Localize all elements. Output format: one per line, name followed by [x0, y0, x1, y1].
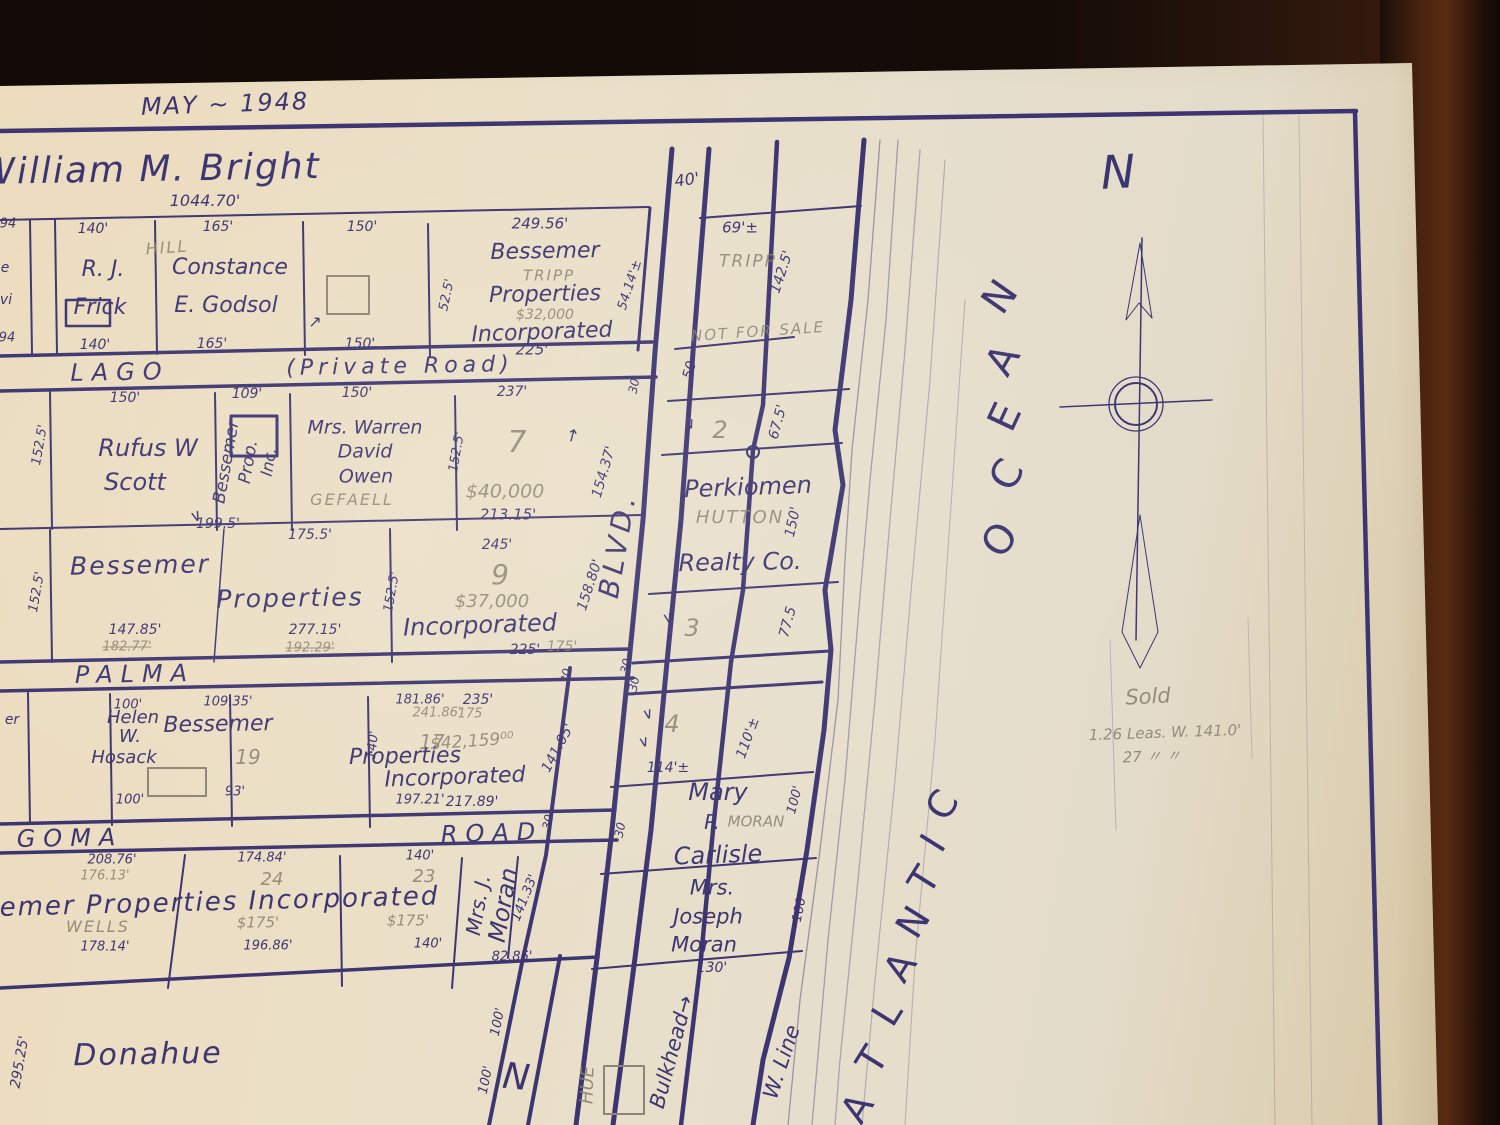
pencil-note-hue: HUE [578, 1066, 597, 1105]
paper-crease-1 [1263, 115, 1275, 1125]
row5-div-1 [168, 855, 185, 988]
pencil-lot-number-7: 7 [507, 428, 526, 458]
compass-shaft [1136, 238, 1142, 640]
measure-row3-b3: 225' [510, 643, 541, 657]
measure-scott-top: 150' [110, 391, 141, 405]
lot-row3-name-1: Bessemer [70, 551, 210, 578]
measure-bessemer-top: 249.56' [512, 217, 569, 232]
measure-bprop-top: 109' [232, 387, 263, 401]
road-label-palma: PALMA [75, 661, 196, 687]
pencil-lot-number-19: 19 [235, 747, 260, 767]
compass-north-label: N [1100, 148, 1137, 196]
pencil-lot-number-2: 2 [712, 418, 727, 442]
measure-owen-top: 150' [342, 386, 373, 400]
lot-frick-name-2: Frick [74, 297, 127, 319]
lotinc-name: Incorporated [384, 765, 526, 792]
lot-hosack-name-1: Helen [107, 709, 159, 727]
paper-crease-4 [1248, 618, 1252, 758]
bottom-road-east-edge [528, 956, 560, 1125]
lot-frick-name-1: R. J. [82, 259, 125, 281]
check-mark: ↗ [308, 314, 321, 330]
row3-div-1 [50, 530, 52, 662]
east-line-3 [668, 389, 849, 401]
east-line-1 [700, 206, 861, 218]
owner-bright: William M. Bright [0, 149, 321, 191]
pencil-measure: 176.13' [80, 870, 129, 883]
lot-godsol-name-2: E. Godsol [174, 295, 277, 317]
pencil-lot-number-3: 3 [684, 616, 699, 640]
measure-lot9-top: 245' [482, 538, 513, 552]
owner-mary-2: P. [704, 812, 720, 832]
owner-jmoran-2: Joseph [673, 907, 743, 928]
pencil-price-lot7: $40,000 [466, 483, 545, 502]
water-line-1 [788, 140, 880, 1125]
pencil-square-vacant-lot [327, 276, 369, 314]
measure-jmoran-front: 130' [697, 961, 728, 975]
measure-lot19-top: 109.35' [203, 696, 252, 709]
owner-carlisle: Carlisle [673, 841, 762, 868]
measure-lot19-bottom: 93' [225, 786, 245, 799]
lot-bessemer-name-2: Properties [489, 283, 601, 307]
pencil-lot-number-4: 4 [664, 712, 679, 736]
measure-bright: 1044.70' [170, 193, 241, 209]
pencil-note-sold-3: 27 〃 〃 [1122, 748, 1181, 765]
pencil-measure: 241.86' [412, 707, 461, 720]
plat-map-paper: MAY ~ 1948 William M. Bright 1044.70' 94… [0, 0, 1500, 1125]
measure-row3-b2: 277.15' [289, 623, 342, 637]
owner-jmoran-3: Moran [671, 935, 737, 956]
lot-row3-name-3: Incorporated [403, 610, 558, 639]
lot-owen-name-3: Owen [339, 468, 393, 487]
row2-div-1 [50, 392, 52, 529]
measure-lot7-bottom: 213.15' [480, 508, 537, 523]
row1-div-0 [30, 220, 32, 353]
pencil-rect-hosack [148, 768, 206, 796]
measure-hosack-bottom: 100' [116, 794, 144, 807]
measure-lot23-bottom: 140' [414, 938, 442, 951]
measure-lota-top: 208.76' [87, 854, 136, 867]
edge-text: vi [0, 293, 12, 307]
measure-lot24-top: 174.84' [237, 852, 286, 865]
pencil-lot-number-24: 24 [261, 871, 284, 889]
edge-measure: 94 [0, 218, 16, 231]
lot-hosack-name-3: Hosack [91, 749, 156, 767]
measure-row3-b1: 147.85' [109, 623, 162, 637]
measure-lot7-top: 237' [497, 385, 528, 399]
pencil-measure-struck: 182.77' [102, 641, 151, 654]
measure-lotinc-top: 235' [463, 693, 494, 707]
edge-measure: 94 [0, 332, 15, 345]
compass-north-arrowhead [1126, 243, 1152, 320]
measure-blvd-30: 30 [627, 377, 642, 394]
pencil-note-moran: MORAN [728, 815, 785, 830]
owner-perkiomen-1: Perkiomen [684, 473, 812, 501]
owner-mary-1: Mary [688, 780, 747, 804]
photo-of-plat-map: MAY ~ 1948 William M. Bright 1044.70' 94… [0, 0, 1500, 1125]
lot-scott-name-2: Scott [104, 470, 166, 494]
pencil-note-tripp-2: TRIPP [719, 254, 777, 271]
owner-perkiomen-2: Realty Co. [678, 549, 802, 575]
measure-lot17-bottom: 197.21' [395, 794, 444, 807]
road-label-lago-suffix: (Private Road) [286, 354, 514, 380]
map-date: MAY ~ 1948 [141, 89, 310, 119]
pencil-note-hutton: HUTTON [696, 509, 784, 527]
measure-row3-len1: 199.5' [196, 517, 240, 531]
pencil-note-sold: Sold [1125, 685, 1171, 708]
pencil-note-gefaell: GEFAELL [310, 492, 394, 508]
pencil-measure: 175 [458, 708, 483, 721]
water-line-5 [905, 300, 965, 1125]
owner-donahue: Donahue [73, 1039, 223, 1072]
row1-div-3 [303, 222, 305, 355]
measure-blvd-30: 30 [559, 667, 574, 684]
measure-frick-top: 140' [78, 222, 109, 236]
measure-blvd-40: 40' [674, 170, 701, 189]
water-line-2 [812, 140, 898, 1125]
pencil-measure-struck: 192.29' [285, 642, 334, 655]
lot-bessemer-name-1: Bessemer [490, 240, 599, 264]
row1-div-4 [428, 224, 430, 356]
road-letter-n: N [501, 1059, 532, 1098]
edge-text: e [1, 261, 10, 275]
compass-crossbar [1060, 400, 1212, 407]
owner-jmoran-1: Mrs. [690, 878, 734, 899]
lot-godsol-name-1: Constance [172, 257, 288, 279]
row5-div-2 [340, 856, 342, 986]
paper-crease-2 [1299, 115, 1312, 1125]
measure-blvd-30: 30 [619, 657, 634, 674]
measure-frick-bottom: 140' [80, 338, 111, 352]
edge-text: er [5, 713, 19, 727]
pencil-price: $175' [237, 916, 279, 931]
lot-row3-name-2: Properties [216, 584, 364, 612]
measure-tripp-front: 69'± [722, 221, 758, 236]
pencil-note-wells: WELLS [66, 919, 130, 935]
measure-lot17-side: 140' [365, 730, 381, 760]
measure-moran-bottom: 82.86' [492, 951, 533, 964]
measure-lot23-top: 140' [406, 850, 434, 863]
measure-row3-len2: 175.5' [288, 528, 332, 542]
measure-lot4-front: 114'± [647, 761, 689, 775]
measure-lota-bottom: 178.14' [80, 941, 129, 954]
measure-blvd-30: 30 [613, 821, 628, 838]
compass-tail-feather [1122, 515, 1158, 668]
east-line-7 [629, 682, 822, 694]
row2-div-3 [290, 394, 292, 530]
pencil-measure: 175' [547, 640, 578, 654]
lot-owen-name-1: Mrs. Warren [308, 419, 423, 438]
lot19-name: Bessemer [163, 713, 272, 737]
row4-div-0 [28, 693, 30, 824]
row1-div-1 [55, 220, 57, 353]
pencil-price-lot9: $37,000 [455, 593, 529, 611]
lot-scott-name-1: Rufus W [98, 436, 197, 460]
pencil-rect-bottom [604, 1066, 644, 1114]
pencil-lot-number-9: 9 [491, 561, 509, 589]
measure-lot24-bottom: 196.86' [243, 940, 292, 953]
pencil-lot-number-23: 23 [413, 868, 436, 886]
lot-owen-name-2: David [338, 443, 393, 462]
measure-bessemer-bottom: 225' [516, 343, 549, 358]
row5-div-3 [452, 858, 462, 988]
measure-godsol-bottom: 165' [197, 337, 228, 351]
road-label-lago: LAGO [70, 359, 170, 385]
measure-godsol-top: 165' [203, 220, 234, 234]
measure-blvd-30: 30 [627, 675, 642, 692]
measure-vacant-top: 150' [347, 220, 378, 234]
road-label-algoma: GOMA [16, 825, 123, 851]
pencil-price: $175' [387, 914, 429, 929]
lot-hosack-name-2: W. [119, 728, 141, 746]
road-label-road: ROAD [440, 819, 543, 847]
map-border-right [1355, 112, 1380, 1125]
measure-lotinc-bottom: 217.89' [446, 795, 499, 809]
measure-vacant-bottom: 150' [345, 337, 376, 351]
